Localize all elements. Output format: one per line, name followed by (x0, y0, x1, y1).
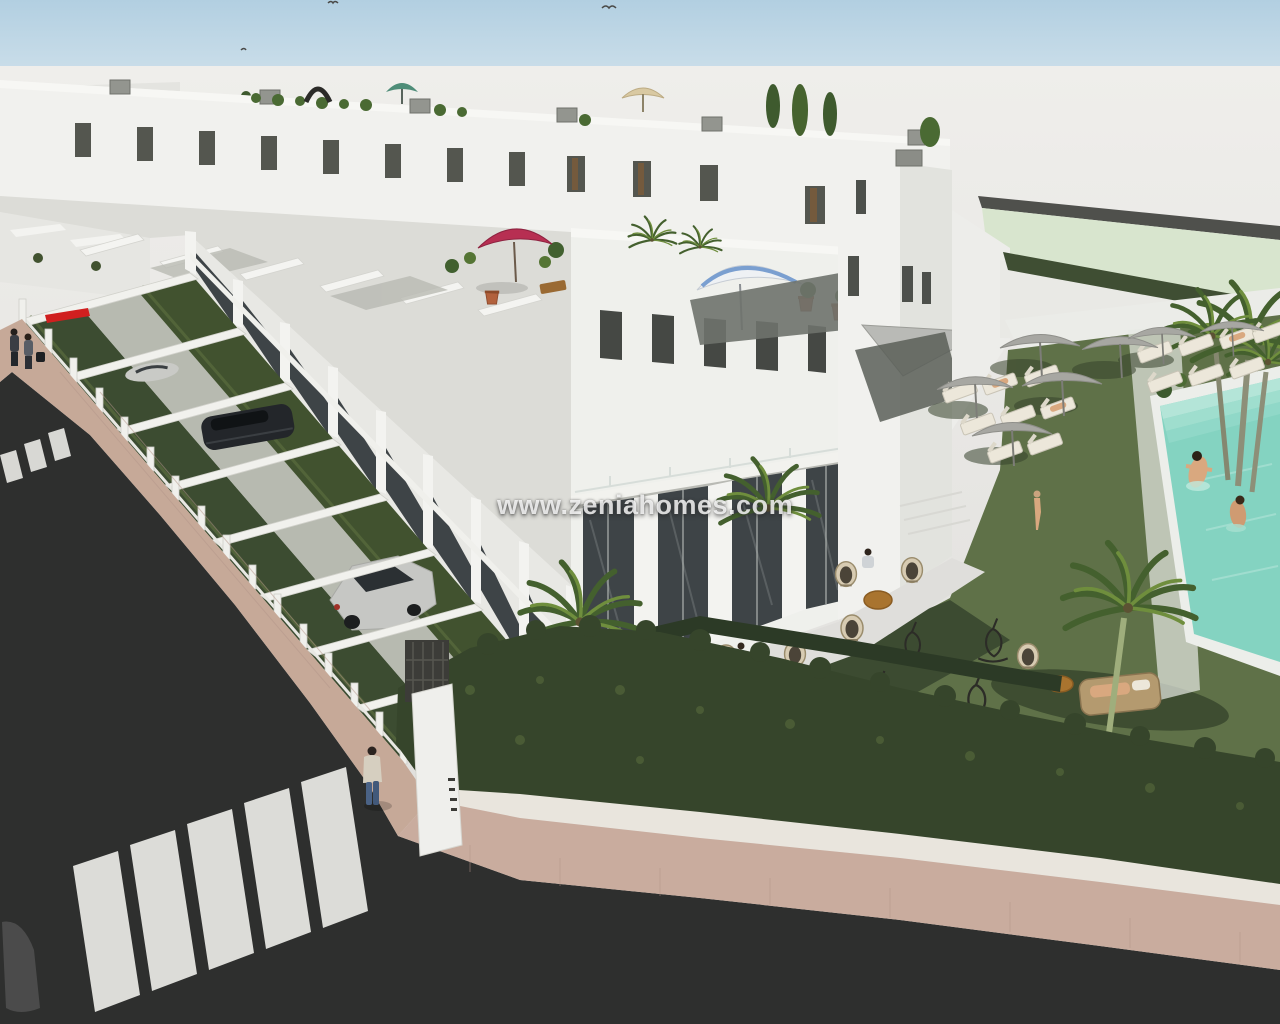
render-scene (0, 0, 1280, 1024)
wicker-sofa (1078, 672, 1161, 716)
render-image: www.zeniahomes.com (0, 0, 1280, 1024)
